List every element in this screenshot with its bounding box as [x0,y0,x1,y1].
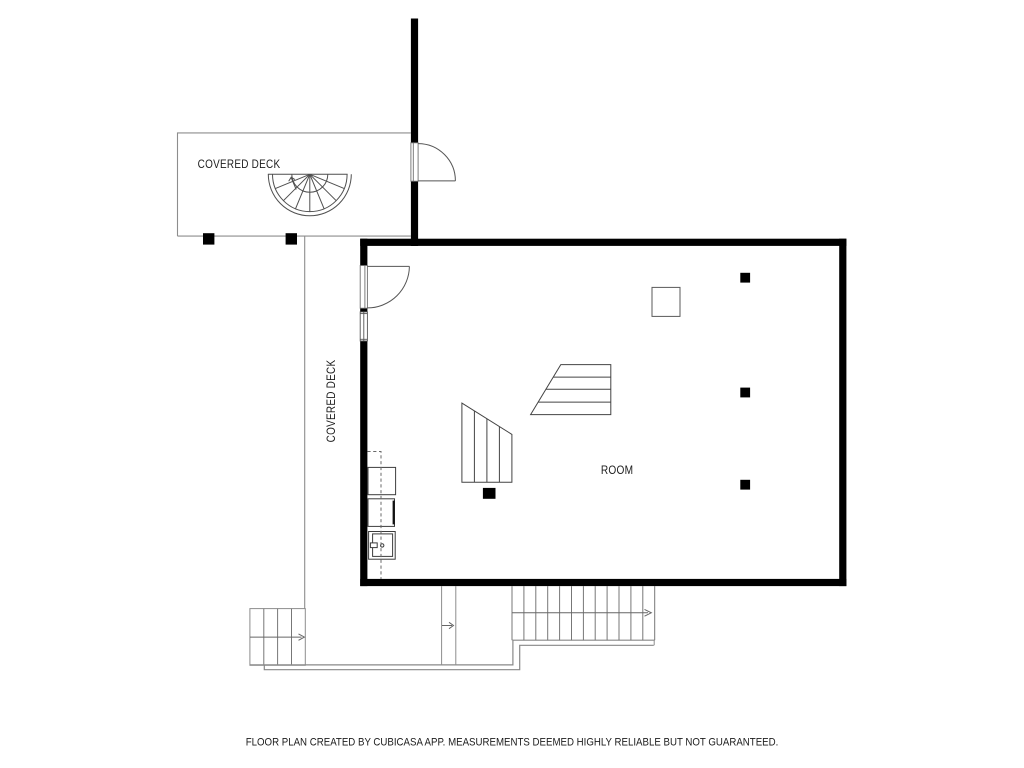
svg-text:COVERED DECK: COVERED DECK [198,159,281,172]
svg-text:ROOM: ROOM [601,464,634,477]
svg-text:FLOOR PLAN CREATED BY CUBICASA: FLOOR PLAN CREATED BY CUBICASA APP. MEAS… [246,736,779,749]
svg-text:COVERED DECK: COVERED DECK [325,359,338,442]
